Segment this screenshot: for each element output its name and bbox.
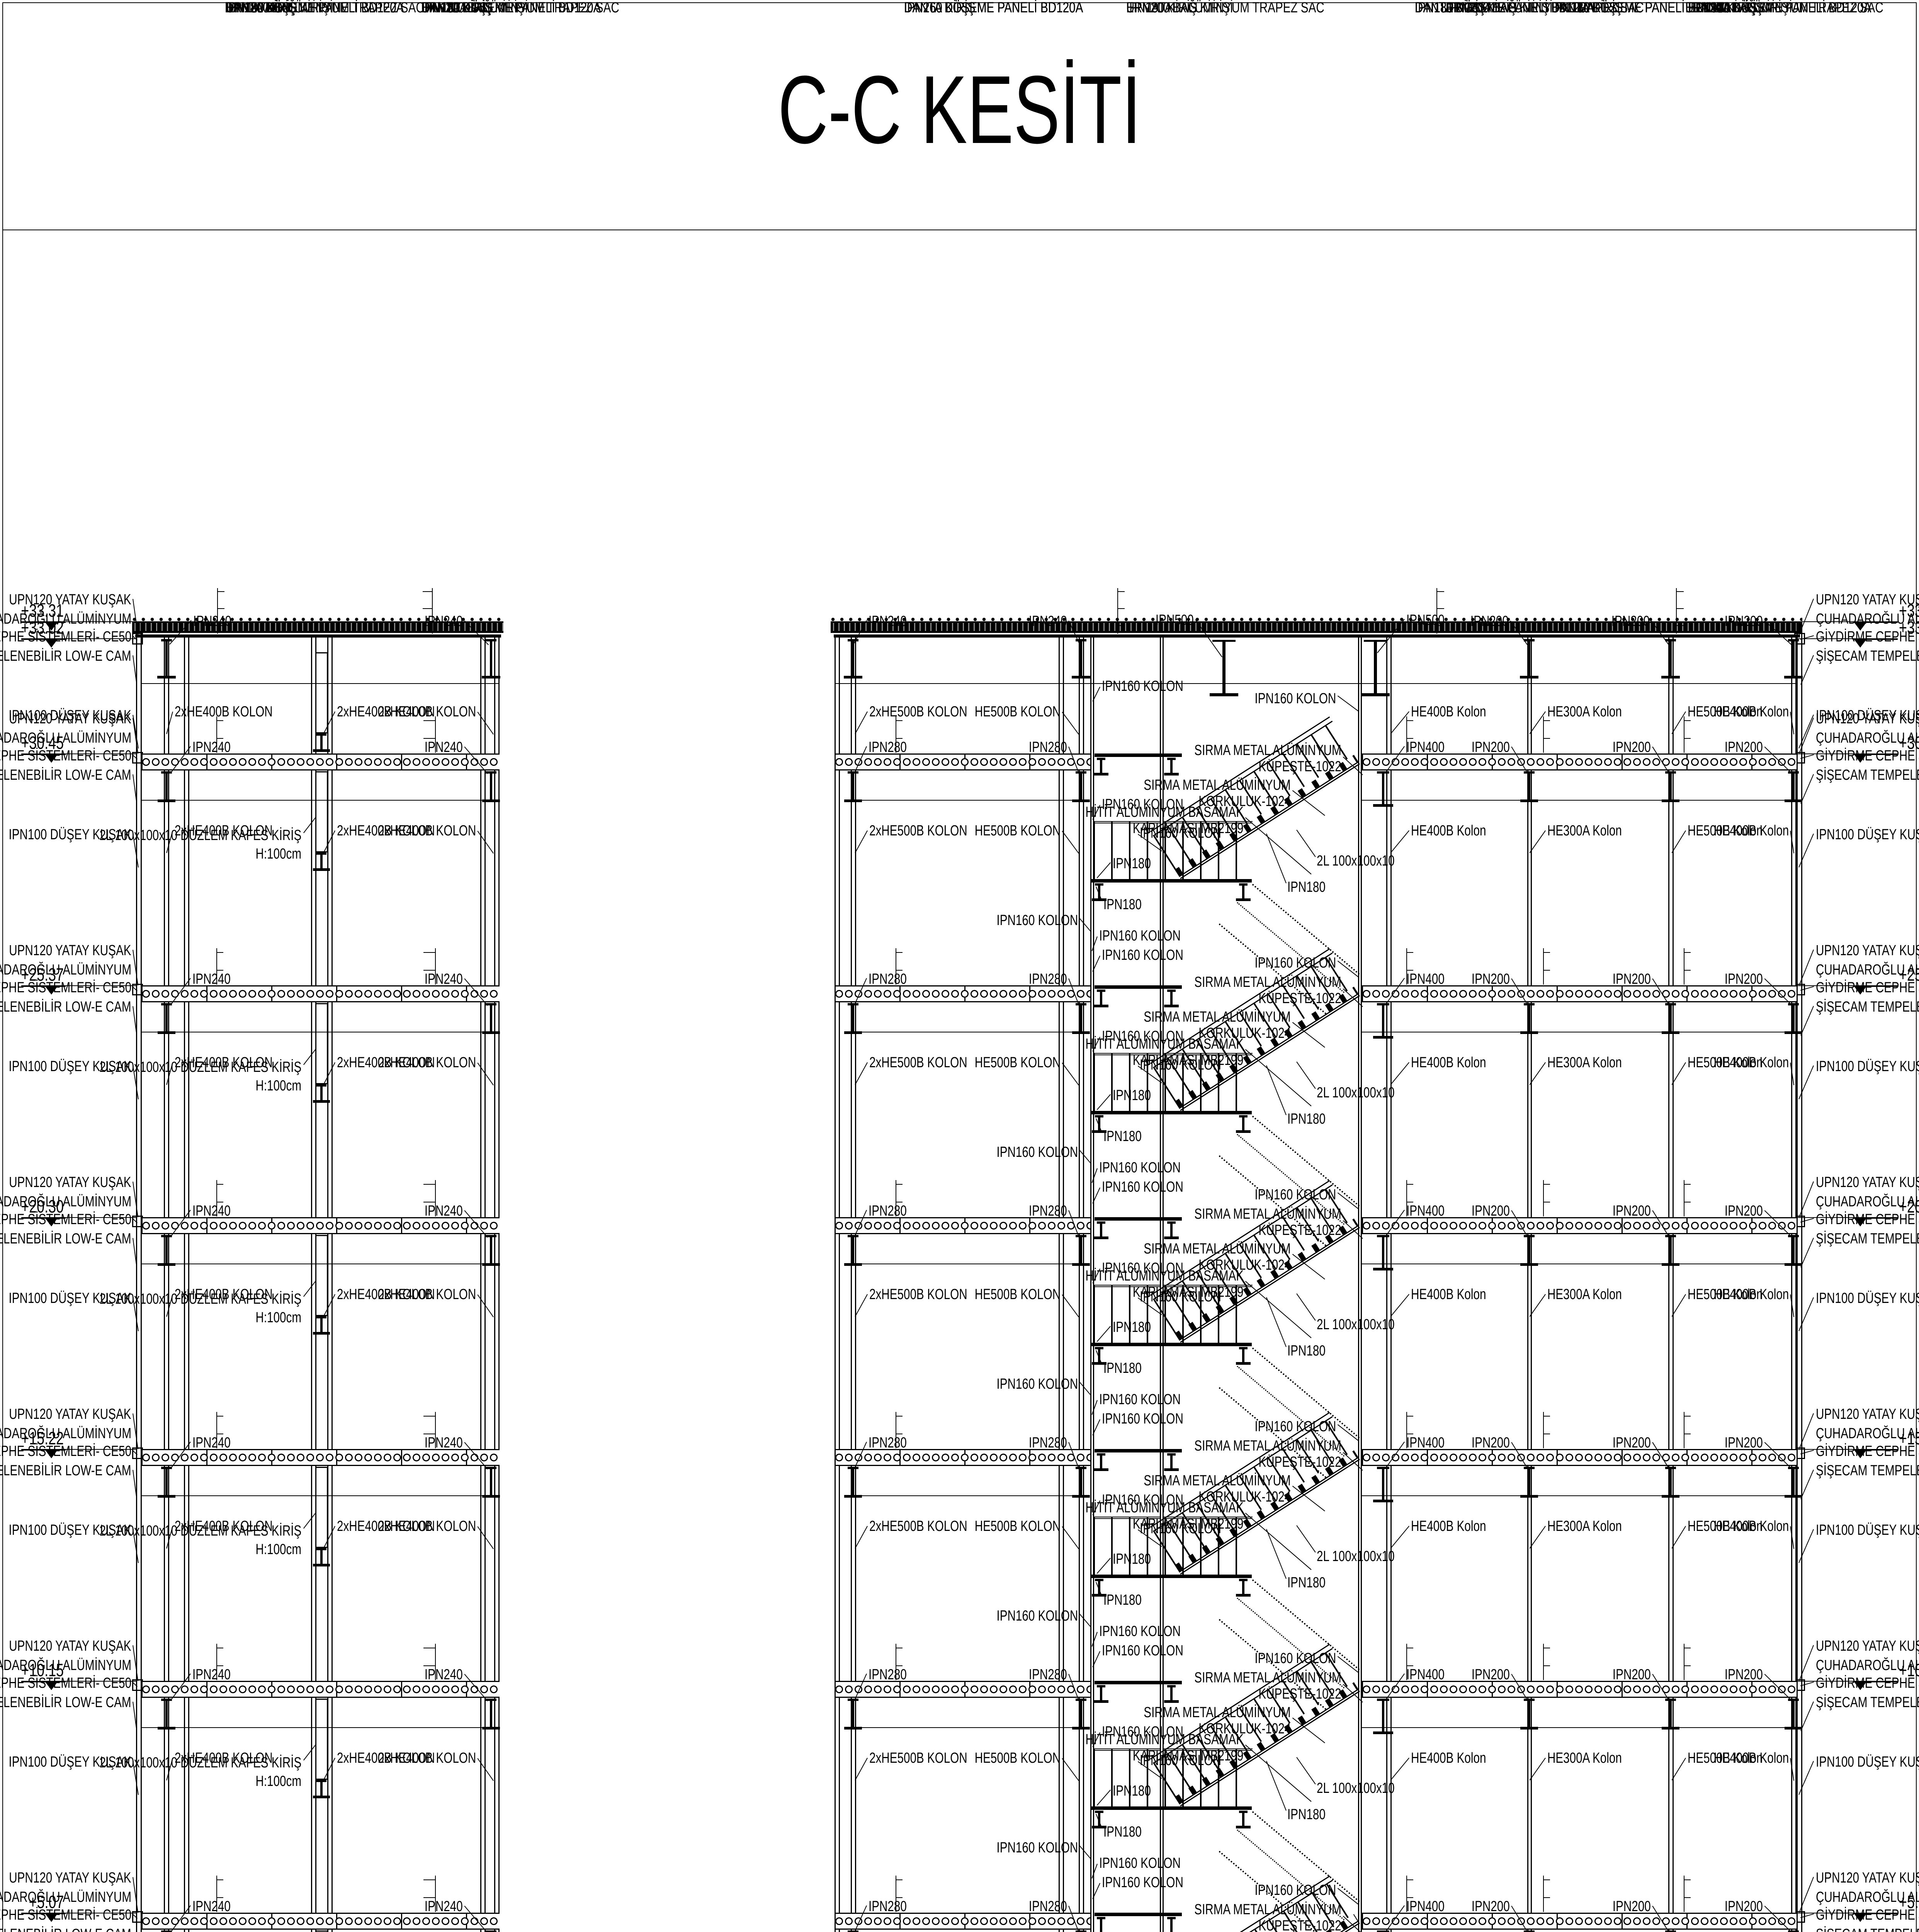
- column-label: 2xHE500B KOLON: [869, 704, 967, 720]
- ipn500-web: [1374, 640, 1377, 696]
- stair-floor-plate: [1095, 1681, 1182, 1684]
- line: [423, 952, 435, 953]
- line: [1406, 1879, 1413, 1880]
- line: [482, 1263, 500, 1266]
- line: [1377, 1467, 1389, 1469]
- stair-label: IPN160 KOLON: [1254, 691, 1336, 707]
- stair-label: IPN160 KOLON: [1099, 1624, 1181, 1639]
- facade-label: ÇUHADAROĞLU ALÜMİNYUM: [1816, 962, 1919, 978]
- line: [1164, 773, 1179, 776]
- stair-label: IPN160 KOLON: [1102, 797, 1183, 813]
- stair-label: IPN180: [1103, 1361, 1142, 1376]
- line: [1236, 1826, 1251, 1828]
- column-label: HE400B Kolon: [1714, 1287, 1789, 1303]
- label: IPN280: [1029, 1667, 1067, 1683]
- line: [1524, 1003, 1535, 1005]
- stair-label: 2L 100x100x10: [1317, 1549, 1395, 1565]
- facade-label: GİYDİRME CEPHE SİSTEMLERİ- CE50: [1816, 1675, 1919, 1691]
- stair-label: 2L 100x100x10: [1317, 1781, 1395, 1796]
- line: [1684, 952, 1691, 953]
- facade-label: UPN120 YATAY KUŞAK: [9, 1175, 131, 1190]
- line: [1662, 1263, 1679, 1266]
- column-label: 2xHE500B KOLON: [869, 1287, 967, 1303]
- truss-label: H:100cm: [255, 846, 301, 862]
- ceiling-chord: [856, 1264, 1090, 1264]
- stair-floor-plate: [1095, 1913, 1182, 1916]
- facade-label: ÇUHADAROĞLU ALÜMİNYUM: [0, 1194, 131, 1210]
- line: [1520, 676, 1538, 679]
- line: [423, 720, 435, 721]
- stair-label: 2L 100x100x10: [1317, 1317, 1395, 1333]
- stair-label: IPN160 KOLON: [1254, 1419, 1336, 1435]
- facade-label: ÇUHADAROĞLU ALÜMİNYUM: [1816, 730, 1919, 746]
- ceiling-chord: [141, 1032, 500, 1032]
- ceiling-chord: [1362, 1495, 1797, 1496]
- line: [1236, 1594, 1251, 1597]
- line: [1520, 799, 1538, 802]
- line: [423, 1648, 435, 1648]
- truss-label: H:100cm: [255, 1310, 301, 1326]
- facade-label: IPN100 DÜŞEY KUŞAK: [1816, 1059, 1919, 1075]
- column-label: HE400B Kolon: [1411, 823, 1486, 839]
- label: IPN200: [1472, 1203, 1510, 1219]
- ibeam-stub: [490, 1467, 492, 1498]
- line: [158, 1263, 175, 1266]
- line: [848, 771, 858, 774]
- floor-slab-band: [835, 1449, 1090, 1466]
- line: [848, 1003, 858, 1005]
- ibeam-stub: [852, 1235, 854, 1266]
- line: [1543, 948, 1544, 985]
- line: [1210, 693, 1238, 696]
- line: [1072, 1031, 1090, 1034]
- line: [1676, 591, 1684, 592]
- facade-label: ÇUHADAROĞLU ALÜMİNYUM: [0, 611, 131, 627]
- facade-label: UPN120 YATAY KUŞAK: [9, 592, 131, 608]
- facade-label: ÇUHADAROĞLU ALÜMİNYUM: [0, 1658, 131, 1673]
- facade-label: ŞİŞECAM TEMPELENEBİLİR LOW-E CAM: [1816, 1231, 1919, 1247]
- roof-edge-beam: [834, 634, 1800, 638]
- line: [161, 639, 172, 641]
- line: [1097, 1453, 1106, 1456]
- stair-label: IPN160 KOLON: [996, 1608, 1078, 1624]
- line: [1543, 738, 1550, 739]
- line: [1785, 1031, 1802, 1034]
- facade-label: GİYDİRME CEPHE SİSTEMLERİ- CE50: [0, 748, 131, 764]
- line: [1524, 771, 1535, 774]
- facade-label: ŞİŞECAM TEMPELENEBİLİR LOW-E CAM: [0, 1463, 131, 1479]
- steel-column: [1079, 638, 1084, 1932]
- line: [848, 1699, 858, 1701]
- line: [157, 676, 176, 679]
- line: [217, 608, 224, 609]
- stair-label: IPN160 KOLON: [996, 1376, 1078, 1392]
- line: [1094, 1468, 1108, 1471]
- line: [1167, 1453, 1176, 1456]
- line: [1661, 676, 1680, 679]
- label: IPN280: [1029, 740, 1067, 755]
- line: [1684, 970, 1691, 971]
- line: [1684, 1416, 1691, 1417]
- line: [1095, 1347, 1104, 1349]
- stair-landing-plate: [1090, 1575, 1252, 1578]
- ibeam-stub: [490, 1699, 492, 1730]
- line: [1543, 1416, 1550, 1417]
- floor-slab-band: [141, 1913, 500, 1930]
- label: IPN400: [1406, 740, 1445, 755]
- line: [1236, 1130, 1251, 1133]
- line: [423, 1879, 435, 1880]
- column-label: 2xHE400B KOLON: [378, 1055, 476, 1071]
- line: [1406, 1665, 1413, 1666]
- line: [896, 1897, 903, 1898]
- stair-label: IPN180: [1113, 1551, 1151, 1567]
- ibeam-stub: [1669, 1235, 1672, 1266]
- ibeam-stub: [1792, 1235, 1795, 1266]
- stair-label: SIRMA METAL ALÜMİNYUM: [1144, 1009, 1291, 1025]
- facade-label: ŞİŞECAM TEMPELENEBİLİR LOW-E CAM: [1816, 1927, 1919, 1932]
- facade-label: ÇUHADAROĞLU ALÜMİNYUM: [1816, 1658, 1919, 1673]
- label: IPN240: [193, 614, 231, 629]
- label: IPN200: [1725, 1899, 1763, 1915]
- line: [1543, 1897, 1550, 1898]
- ibeam-stub: [165, 639, 168, 679]
- facade-label: ŞİŞECAM TEMPELENEBİLİR LOW-E CAM: [1816, 767, 1919, 783]
- line: [1094, 1005, 1108, 1007]
- floor-slab-band: [141, 1449, 500, 1466]
- steel-column: [851, 638, 856, 1932]
- label: IPN200: [1470, 614, 1509, 629]
- facade-label: ŞİŞECAM TEMPELENEBİLİR LOW-E CAM: [0, 1927, 131, 1932]
- stair-landing-plate: [1090, 1111, 1252, 1114]
- line: [1406, 1434, 1413, 1434]
- line: [216, 1897, 223, 1898]
- slab-stack-label: IPN180 KİRİŞ: [225, 0, 296, 16]
- stair-column: [1358, 638, 1362, 1932]
- label: IPN200: [1613, 740, 1651, 755]
- line: [1406, 1184, 1413, 1185]
- line: [844, 799, 862, 802]
- stair-label: SIRMA METAL ALÜMİNYUM: [1195, 1206, 1341, 1222]
- line: [896, 1184, 903, 1185]
- line: [1095, 1115, 1104, 1117]
- line: [1377, 771, 1389, 774]
- facade-label: ŞİŞECAM TEMPELENEBİLİR LOW-E CAM: [0, 767, 131, 783]
- ibeam-stub: [490, 639, 492, 679]
- stair-label: SIRMA METAL ALÜMİNYUM: [1195, 1670, 1341, 1686]
- floor-slab-band: [835, 1913, 1090, 1930]
- line: [1239, 1811, 1248, 1813]
- truss-label: H:100cm: [255, 1774, 301, 1789]
- line: [1076, 1467, 1086, 1469]
- roof-edge-beam: [135, 634, 501, 638]
- sheet-border: [2, 2, 1917, 1932]
- label: IPN400: [1406, 1435, 1445, 1451]
- ibeam-stub: [1382, 1003, 1384, 1039]
- ibeam-stub: [1080, 1467, 1082, 1498]
- line: [216, 1184, 223, 1185]
- stair-label: IPN160 KOLON: [1102, 1875, 1183, 1891]
- column-label: HE400B Kolon: [1411, 1287, 1486, 1303]
- ibeam-stub: [490, 1235, 492, 1266]
- line: [1072, 676, 1090, 679]
- stair-label: SIRMA METAL ALÜMİNYUM: [1195, 1902, 1341, 1918]
- stair-label: IPN180: [1113, 1320, 1151, 1335]
- line: [1436, 591, 1444, 592]
- curtain-wall-mullion: [1797, 621, 1798, 1932]
- column-label: 2xHE400B KOLON: [175, 1750, 273, 1766]
- column-label: 2xHE400B KOLON: [175, 1055, 273, 1071]
- label: IPN240: [425, 1899, 463, 1915]
- page-title: C-C KESİTİ: [269, 54, 1650, 165]
- label: IPN200: [1725, 1435, 1763, 1451]
- ibeam-stub: [1080, 1699, 1082, 1730]
- label: IPN400: [1406, 1667, 1445, 1683]
- line: [844, 1263, 862, 1266]
- ibeam-stub: [165, 1467, 168, 1498]
- line: [1095, 1579, 1104, 1581]
- facade-label: GİYDİRME CEPHE SİSTEMLERİ- CE50: [1816, 1212, 1919, 1228]
- ibeam-stub: [1669, 1003, 1672, 1034]
- facade-label: ÇUHADAROĞLU ALÜMİNYUM: [1816, 611, 1919, 627]
- line: [1524, 1235, 1535, 1237]
- line: [896, 1879, 903, 1880]
- label: IPN240: [425, 971, 463, 987]
- floor-slab-band: [141, 1217, 500, 1234]
- line: [313, 749, 330, 752]
- line: [482, 1495, 500, 1498]
- line: [1373, 1500, 1393, 1502]
- ibeam-stub: [1528, 1235, 1530, 1266]
- facade-label: GİYDİRME CEPHE SİSTEMLERİ- CE50: [0, 980, 131, 996]
- facade-label: IPN100 DÜŞEY KUŞAK: [9, 1059, 131, 1075]
- line: [1543, 1876, 1544, 1912]
- ibeam-stub: [1382, 1235, 1384, 1270]
- ibeam-stub: [490, 1003, 492, 1034]
- ibeam-stub: [165, 1003, 168, 1034]
- line: [896, 720, 903, 721]
- ibeam-stub: [1669, 1699, 1672, 1730]
- facade-label: IPN100 DÜŞEY KUŞAK: [9, 827, 131, 843]
- label: IPN280: [869, 740, 907, 755]
- line: [313, 1564, 330, 1566]
- column-label: 2xHE400B KOLON: [378, 1287, 476, 1303]
- line: [1117, 591, 1125, 592]
- ibeam-stub: [1528, 1003, 1530, 1034]
- column-label: HE300A Kolon: [1547, 1287, 1622, 1303]
- stair-label: 2L 100x100x10: [1317, 853, 1395, 869]
- lattice-truss: [315, 1930, 328, 1932]
- facade-label: ÇUHADAROĞLU ALÜMİNYUM: [1816, 1194, 1919, 1210]
- line: [848, 1467, 858, 1469]
- line: [1785, 1263, 1802, 1266]
- line: [1785, 1727, 1802, 1730]
- column-label: 2xHE400B KOLON: [175, 1287, 273, 1303]
- stair-label: SIRMA METAL ALÜMİNYUM: [1144, 1241, 1291, 1257]
- line: [316, 852, 326, 855]
- ibeam-stub: [1080, 639, 1082, 679]
- line: [1373, 804, 1393, 807]
- stair-label: IPN180: [1113, 856, 1151, 872]
- ceiling-chord: [1362, 1727, 1797, 1728]
- line: [1665, 1930, 1676, 1932]
- line: [316, 1548, 326, 1550]
- label: IPN280: [869, 1667, 907, 1683]
- column-label: HE500B KOLON: [975, 1519, 1061, 1534]
- line: [1373, 1731, 1393, 1734]
- stair-label: IPN160 KOLON: [1099, 1392, 1181, 1408]
- facade-label: GİYDİRME CEPHE SİSTEMLERİ- CE50: [1816, 980, 1919, 996]
- floor-slab-band: [141, 985, 500, 1002]
- line: [1676, 588, 1677, 634]
- stair-label: IPN160 KOLON: [1140, 1521, 1221, 1537]
- facade-label: ŞİŞECAM TEMPELENEBİLİR LOW-E CAM: [1816, 648, 1919, 664]
- stair-label: IPN180: [1113, 1088, 1151, 1104]
- label: IPN200: [1613, 1899, 1651, 1915]
- label: IPN280: [1029, 971, 1067, 987]
- line: [1076, 1930, 1086, 1932]
- facade-label: GİYDİRME CEPHE SİSTEMLERİ- CE50: [1816, 748, 1919, 764]
- line: [1377, 1003, 1389, 1005]
- ceiling-chord: [856, 1495, 1090, 1496]
- stair-label: IPN160 KOLON: [1254, 1883, 1336, 1898]
- line: [1167, 1685, 1176, 1687]
- line: [216, 1434, 223, 1434]
- line: [482, 1727, 500, 1730]
- line: [844, 1495, 862, 1498]
- line: [1684, 1180, 1684, 1216]
- facade-label: ŞİŞECAM TEMPELENEBİLİR LOW-E CAM: [0, 1695, 131, 1711]
- line: [1072, 1495, 1090, 1498]
- stair-label: IPN160 KOLON: [1102, 947, 1183, 963]
- ibeam-stub: [1382, 771, 1384, 807]
- line: [1094, 1236, 1108, 1239]
- column-label: 2xHE500B KOLON: [869, 1750, 967, 1766]
- facade-label: ÇUHADAROĞLU ALÜMİNYUM: [0, 1889, 131, 1905]
- line: [848, 1930, 858, 1932]
- label: IPN240: [192, 740, 231, 755]
- stair-label: KÜPEŞTE-1022: [1259, 1454, 1341, 1470]
- stair-label: IPN180: [1287, 879, 1326, 895]
- column-label: 2xHE400B KOLON: [175, 704, 273, 720]
- stair-label: IPN160 KOLON: [1102, 1029, 1183, 1044]
- label: IPN500: [1156, 612, 1194, 628]
- line: [1665, 1699, 1676, 1701]
- line: [1662, 1031, 1679, 1034]
- ibeam-stub: [852, 1467, 854, 1498]
- stair-label: IPN160 KOLON: [996, 913, 1078, 929]
- facade-label: IPN100 DÜŞEY KUŞAK: [1816, 1291, 1919, 1306]
- label: IPN200: [1472, 971, 1510, 987]
- facade-label: ŞİŞECAM TEMPELENEBİLİR LOW-E CAM: [1816, 1695, 1919, 1711]
- stair-label: SIRMA METAL ALÜMİNYUM: [1195, 1438, 1341, 1454]
- slab-stack-label: IPN180 KİRİŞ: [1552, 0, 1623, 16]
- line: [1164, 1468, 1179, 1471]
- ceiling-chord: [141, 800, 500, 801]
- line: [1524, 1930, 1535, 1932]
- lattice-truss: [315, 1003, 328, 1084]
- label: IPN280: [1029, 1899, 1067, 1915]
- stair-label: IPN180: [1103, 1824, 1142, 1840]
- column-label: HE300A Kolon: [1547, 1750, 1622, 1766]
- line: [216, 1665, 223, 1666]
- floor-slab-band: [1362, 1449, 1797, 1466]
- steel-column: [1791, 638, 1797, 1932]
- floor-slab-band: [1362, 753, 1797, 770]
- facade-label: ÇUHADAROĞLU ALÜMİNYUM: [1816, 1426, 1919, 1442]
- line: [1684, 1644, 1684, 1680]
- line: [1239, 1347, 1248, 1349]
- label: IPN280: [869, 1203, 907, 1219]
- floor-slab-band: [835, 753, 1090, 770]
- ibeam-stub: [1792, 771, 1795, 802]
- ibeam-stub: [1669, 771, 1672, 802]
- ibeam-stub: [1080, 1003, 1082, 1034]
- facade-label: IPN100 DÜŞEY KUŞAK: [9, 1754, 131, 1770]
- line: [1167, 758, 1176, 760]
- column-label: 2xHE400B KOLON: [378, 823, 476, 839]
- line: [1662, 799, 1679, 802]
- line: [1406, 1202, 1413, 1202]
- facade-label: UPN120 YATAY KUŞAK: [9, 1638, 131, 1654]
- line: [1524, 1699, 1535, 1701]
- ibeam-stub: [1528, 639, 1530, 679]
- line: [1684, 1897, 1691, 1898]
- line: [1164, 1236, 1179, 1239]
- title-separator: [2, 230, 1917, 230]
- line: [423, 1202, 435, 1202]
- label: IPN500: [1406, 612, 1445, 628]
- line: [1364, 640, 1387, 642]
- label: IPN240: [425, 740, 463, 755]
- line: [216, 1416, 223, 1417]
- line: [1406, 1648, 1413, 1648]
- line: [1543, 1434, 1550, 1434]
- stair-label: IPN160 KOLON: [996, 1145, 1078, 1160]
- label: IPN280: [1029, 1435, 1067, 1451]
- ceiling-chord: [141, 1495, 500, 1496]
- curtain-wall-mullion: [1801, 621, 1802, 1932]
- column-label: HE400B Kolon: [1714, 1055, 1789, 1071]
- line: [1543, 720, 1550, 721]
- ibeam-stub: [1792, 1467, 1795, 1498]
- stair-label: KÜPEŞTE-1022: [1259, 759, 1341, 775]
- label: IPN240: [869, 614, 907, 629]
- line: [1684, 1665, 1691, 1666]
- line: [1377, 1930, 1389, 1932]
- label: IPN400: [1406, 971, 1445, 987]
- line: [1377, 1699, 1389, 1701]
- line: [1665, 1467, 1676, 1469]
- line: [1095, 1811, 1104, 1813]
- line: [316, 1084, 326, 1087]
- line: [216, 1648, 223, 1648]
- line: [1373, 1036, 1393, 1039]
- stair-floor-plate: [1095, 753, 1182, 757]
- facade-label: GİYDİRME CEPHE SİSTEMLERİ- CE50: [0, 1907, 131, 1923]
- facade-label: GİYDİRME CEPHE SİSTEMLERİ- CE50: [0, 1212, 131, 1228]
- line: [844, 1031, 862, 1034]
- line: [216, 1879, 223, 1880]
- line: [1684, 716, 1684, 753]
- line: [423, 591, 432, 592]
- line: [1662, 1495, 1679, 1498]
- line: [313, 1796, 330, 1798]
- line: [896, 1434, 903, 1434]
- steel-column: [1386, 638, 1392, 1932]
- facade-label: GİYDİRME CEPHE SİSTEMLERİ- CE50: [1816, 1907, 1919, 1923]
- line: [1665, 1235, 1676, 1237]
